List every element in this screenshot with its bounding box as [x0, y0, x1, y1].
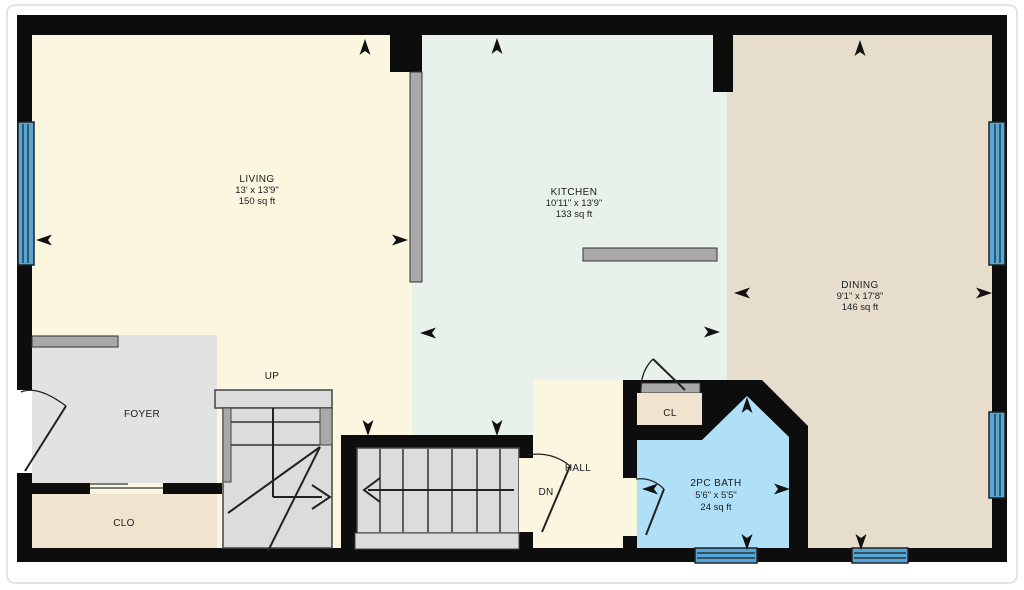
foyer-half-wall: [32, 336, 118, 347]
dining-area: 146 sq ft: [842, 302, 879, 313]
dining-bottom-window: [852, 548, 908, 563]
living-area: 150 sq ft: [239, 196, 276, 207]
cl-label: CL: [663, 408, 677, 419]
living-label: LIVING: [239, 174, 274, 185]
hall-door-opening: [519, 458, 533, 532]
bath-label: 2PC BATH: [690, 478, 741, 489]
bath-door-opening: [623, 478, 637, 536]
living-dimensions: 13' x 13'9": [235, 185, 278, 196]
window-glass: [989, 122, 1005, 265]
partial-wall-living-kitchen: [410, 72, 422, 282]
kitchen-floor: [412, 35, 727, 435]
entry-door-opening: [17, 390, 32, 473]
bath-area: 24 sq ft: [700, 502, 732, 513]
floor-plan-page: LIVING 13' x 13'9" 150 sq ft KITCHEN 10'…: [0, 0, 1024, 590]
hall-label: HALL: [565, 463, 591, 474]
foyer-wall-seg: [30, 483, 90, 494]
stair-wall-nub: [223, 408, 231, 482]
foyer-label: FOYER: [124, 409, 160, 420]
left-window: [18, 122, 34, 265]
dining-dimensions: 9'1" x 17'8": [837, 291, 884, 302]
wall-stub-kitchen-dining: [713, 15, 733, 92]
kitchen-area: 133 sq ft: [556, 209, 593, 220]
stair-wall-nub: [320, 408, 332, 445]
dn-stair-landing: [355, 533, 519, 549]
cl-shelf: [641, 383, 700, 393]
window-glass: [852, 548, 908, 563]
kitchen-dimensions: 10'11" x 13'9": [546, 198, 603, 209]
kitchen-counter: [583, 248, 717, 261]
bath-window: [695, 548, 757, 563]
foyer-wall-seg: [163, 483, 222, 494]
floor-plan-svg: LIVING 13' x 13'9" 150 sq ft KITCHEN 10'…: [0, 0, 1024, 590]
window-glass: [18, 122, 34, 265]
right-window-lower: [989, 412, 1005, 498]
bath-window-glass: [695, 548, 757, 563]
up-staircase: [215, 390, 332, 551]
wall-stub-living-kitchen: [390, 15, 422, 72]
dn-label: DN: [538, 487, 553, 498]
dining-label: DINING: [841, 280, 878, 291]
right-window-upper: [989, 122, 1005, 265]
bath-dimensions: 5'6" x 5'5": [695, 490, 737, 501]
window-glass: [989, 412, 1005, 498]
kitchen-label: KITCHEN: [551, 187, 598, 198]
clo-label: CLO: [113, 518, 134, 529]
up-stair-landing: [215, 390, 332, 408]
up-label: UP: [265, 371, 280, 382]
